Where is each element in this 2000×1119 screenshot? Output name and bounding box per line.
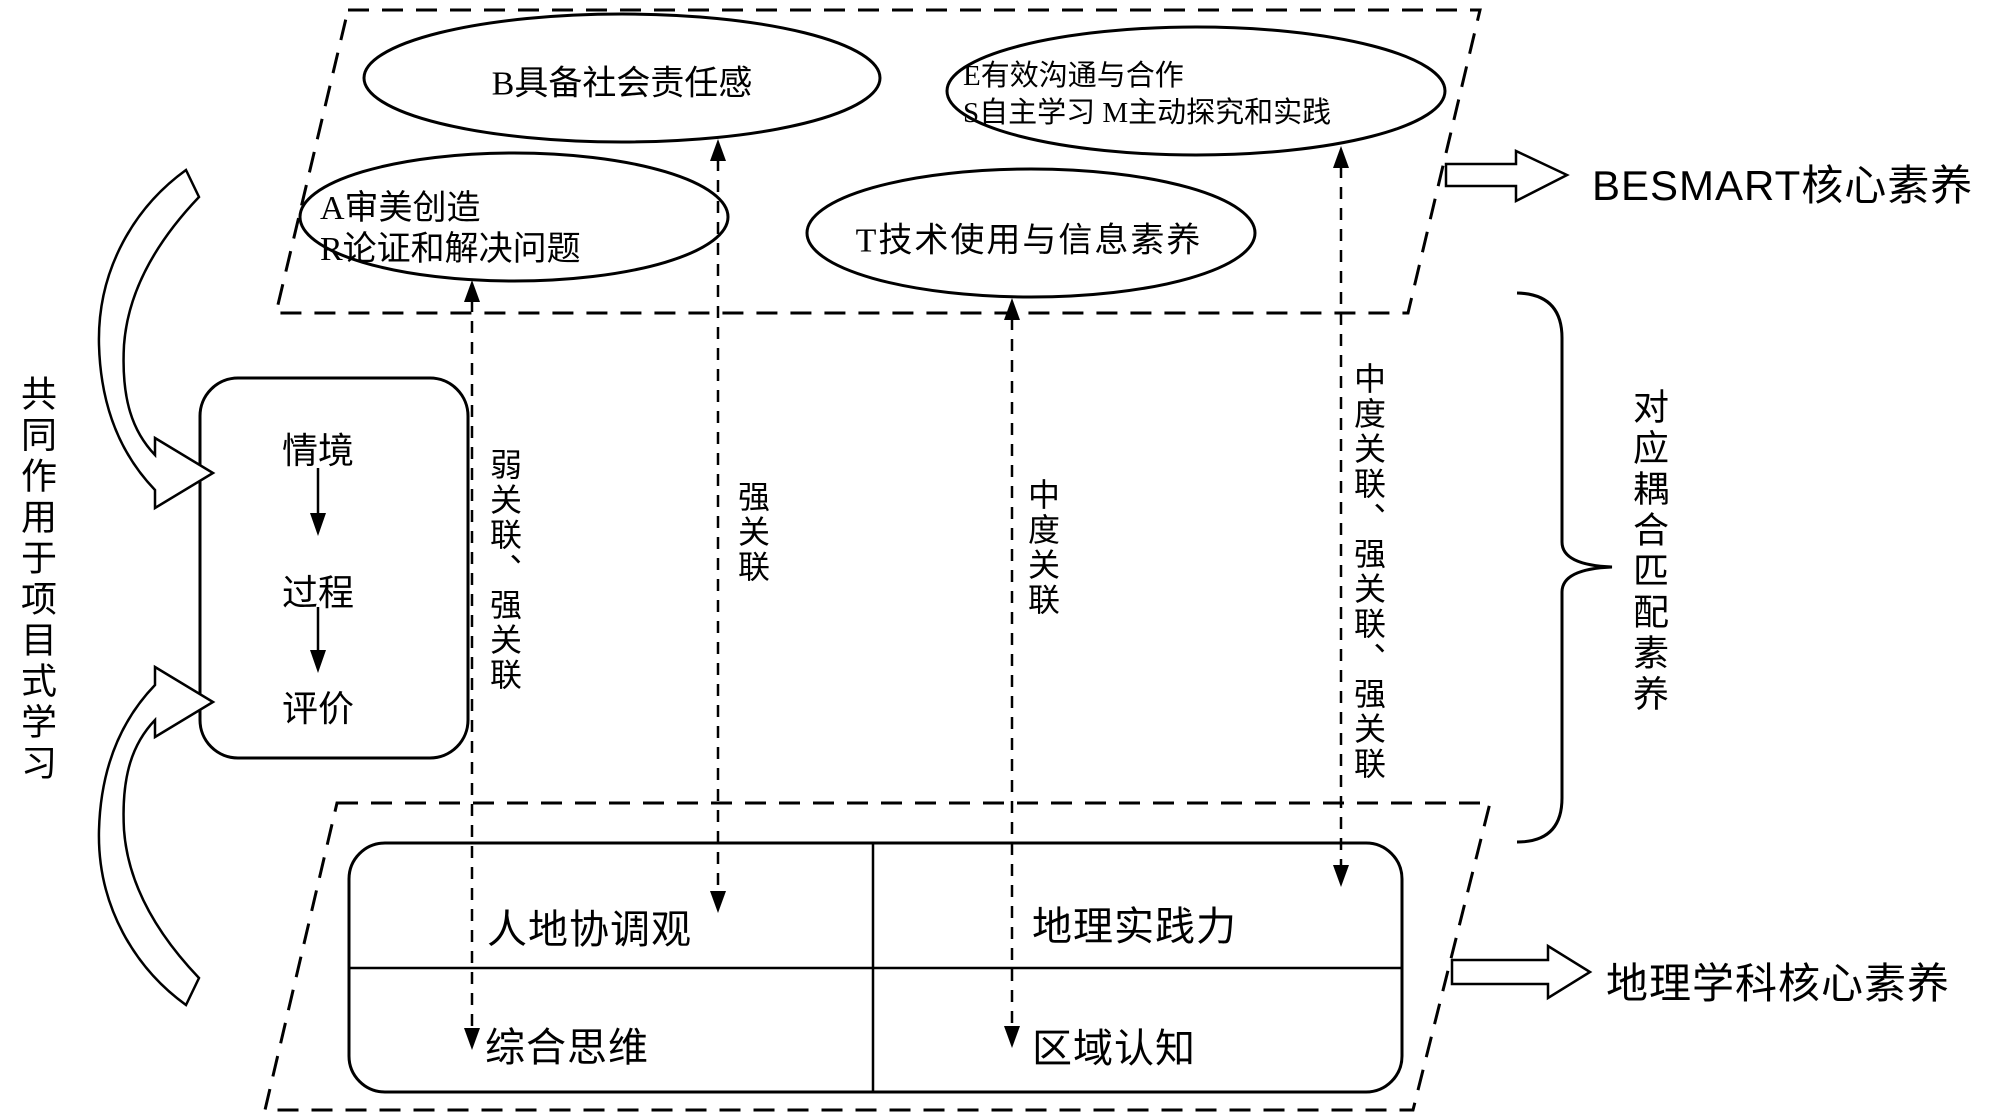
ellipse-ar-label-line2: R论证和解决问题	[320, 229, 581, 270]
diagram-canvas: B具备社会责任感 A审美创造 R论证和解决问题 E有效沟通与合作 S自主学习 M…	[0, 0, 2000, 1119]
connector-weak-strong-label: 弱关联、强关联	[488, 448, 520, 693]
process-item-process: 过程	[218, 564, 418, 616]
besmart-core-competency-label: BESMART核心素养	[1592, 152, 1973, 213]
geo-cell-regional-cognition: 区域认知	[1032, 1016, 1196, 1074]
geo-arrow-icon	[1452, 946, 1590, 998]
connector-medium-up-arrow-icon	[1004, 298, 1020, 320]
connector-medium-strong-strong-label: 中度关联、强关联、强关联	[1352, 362, 1384, 782]
ellipse-ar-label: A审美创造 R论证和解决问题	[320, 188, 581, 270]
geo-cell-practice: 地理实践力	[1032, 894, 1237, 952]
connector-strong-up-arrow-icon	[710, 139, 726, 161]
geo-cell-comprehensive-thinking: 综合思维	[485, 1015, 649, 1073]
connector-medium-label: 中度关联	[1026, 478, 1058, 618]
ellipse-esm-label-line2: S自主学习 M主动探究和实践	[963, 95, 1331, 132]
curved-arrow-bottom-icon	[99, 667, 213, 1005]
connector-medium-strong-strong-up-arrow-icon	[1333, 146, 1349, 168]
coupling-brace-icon	[1517, 293, 1612, 842]
process-item-situation: 情境	[218, 422, 418, 474]
geo-core-competency-label: 地理学科核心素养	[1606, 950, 1950, 1011]
ellipse-esm-label: E有效沟通与合作 S自主学习 M主动探究和实践	[963, 58, 1331, 132]
ellipse-ar-label-line1: A审美创造	[320, 188, 581, 229]
joint-action-label: 共同作用于项目式学习	[18, 375, 54, 785]
ellipse-b-label: B具备社会责任感	[492, 56, 753, 105]
besmart-arrow-icon	[1446, 151, 1567, 201]
connector-weak-strong-up-arrow-icon	[464, 280, 480, 302]
process-item-evaluation: 评价	[218, 680, 418, 732]
curved-arrow-top-icon	[99, 170, 213, 508]
geo-cell-human-land: 人地协调观	[487, 897, 692, 955]
coupling-label: 对应耦合匹配素养	[1630, 388, 1666, 716]
ellipse-t-label: T技术使用与信息素养	[856, 213, 1203, 262]
ellipse-esm-label-line1: E有效沟通与合作	[963, 58, 1331, 95]
connector-strong-label: 强关联	[736, 480, 768, 585]
